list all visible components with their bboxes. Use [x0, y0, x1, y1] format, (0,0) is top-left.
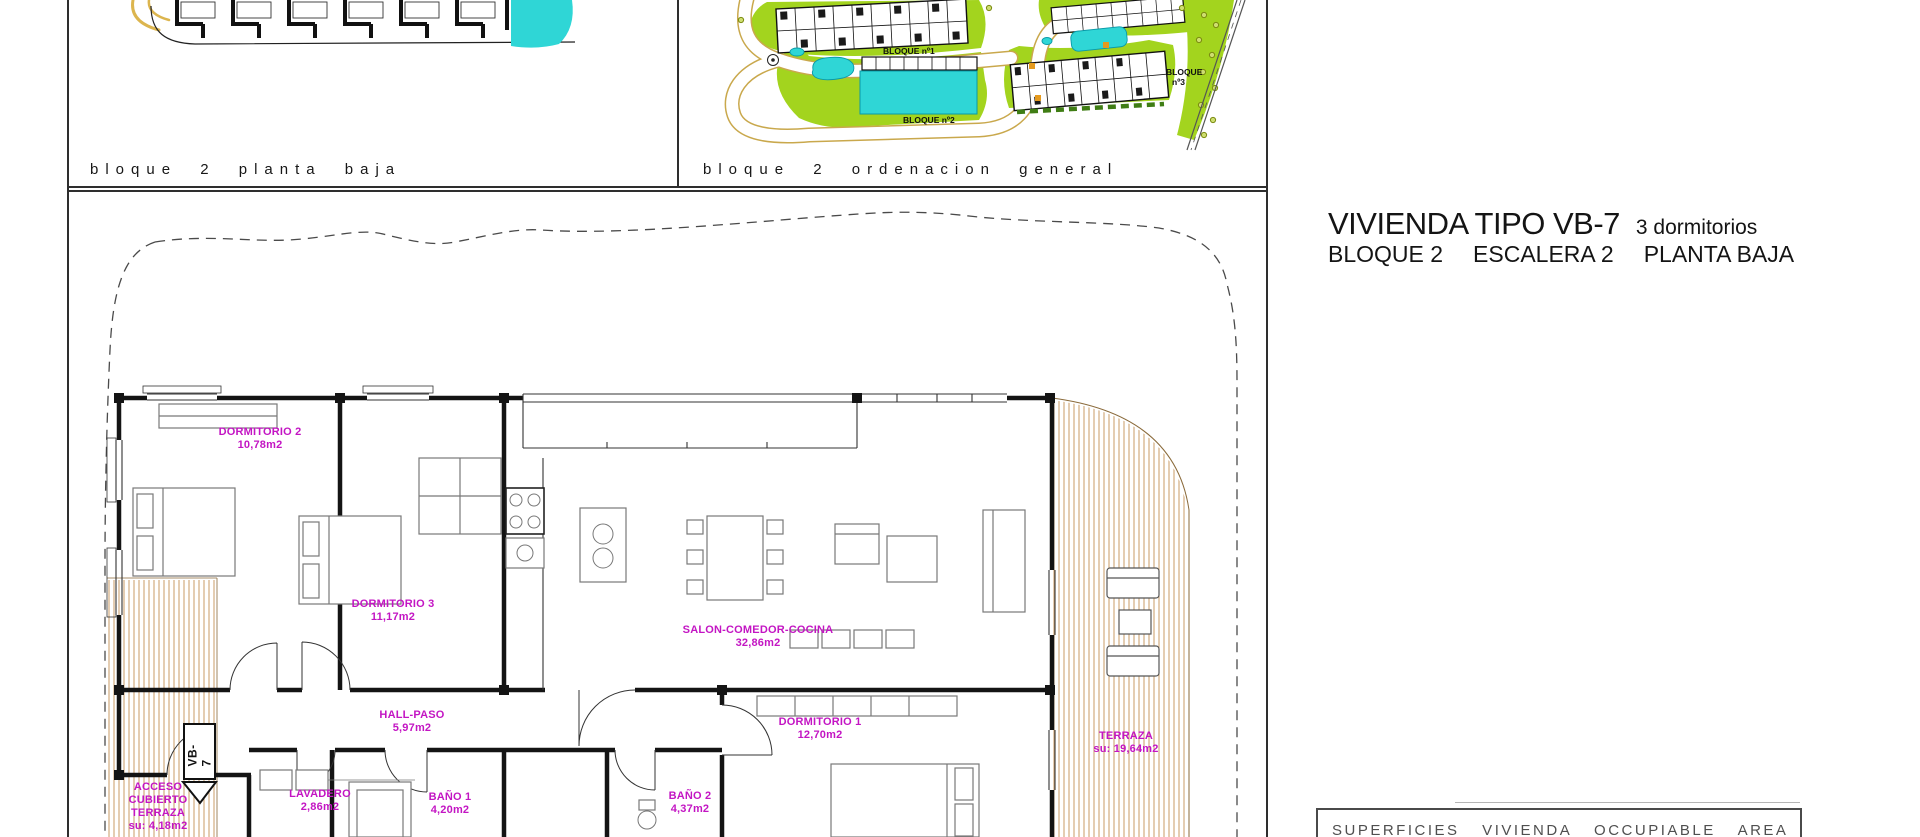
subtitle-planta: PLANTA BAJA: [1644, 241, 1794, 268]
title-vivienda-tipo: VIVIENDA TIPO VB-7: [1328, 206, 1620, 242]
label-dormitorio2: DORMITORIO 210,78m2: [185, 426, 335, 452]
label-dormitorio3: DORMITORIO 311,17m2: [318, 598, 468, 624]
superficies-table-header: SUPERFICIES VIVIENDA OCCUPIABLE AREA: [1316, 808, 1802, 837]
bloque-2-highlight: [860, 71, 977, 114]
label-terraza: TERRAZAsu: 19,64m2: [1076, 730, 1176, 756]
caption-ordenacion-general: bloque 2 ordenacion general: [703, 161, 1118, 178]
sheet-title: VIVIENDA TIPO VB-7 3 dormitorios: [1328, 206, 1757, 242]
label-lavadero: LAVADERO2,86m2: [270, 788, 370, 814]
subtitle-bloque: BLOQUE 2: [1328, 241, 1443, 268]
sheet-subtitle: BLOQUE 2 ESCALERA 2 PLANTA BAJA: [1328, 241, 1794, 268]
bloque-2-building: [860, 57, 977, 114]
unit-strip: [151, 0, 575, 48]
bloque-2-label: BLOQUE nº2: [903, 115, 955, 125]
label-salon: SALON-COMEDOR-COCINA32,86m2: [668, 624, 848, 650]
highlighted-unit: [511, 0, 573, 48]
bloque-1-building: [776, 0, 968, 53]
label-dormitorio1: DORMITORIO 112,70m2: [760, 716, 880, 742]
bloque-1-label: BLOQUE nº1: [883, 46, 935, 56]
furniture: [133, 404, 1159, 837]
superficies-label: SUPERFICIES VIVIENDA OCCUPIABLE AREA: [1318, 822, 1788, 837]
bloque-3-label-line1: BLOQUE: [1166, 67, 1203, 77]
label-bano2: BAÑO 24,37m2: [645, 790, 735, 816]
label-bano1: BAÑO 14,20m2: [405, 791, 495, 817]
drawing-sheet: bloque 2 planta baja: [0, 0, 1920, 837]
label-acceso: ACCESOCUBIERTO TERRAZAsu: 4,18m2: [103, 781, 213, 833]
frame-top-panels-bottom: [67, 186, 1268, 188]
planta-baja-strip-drawing: [67, 0, 677, 186]
unit-tag-plaque: VB-7: [183, 723, 216, 780]
subtitle-escalera: ESCALERA 2: [1473, 241, 1614, 268]
site-plan-drawing: BLOQUE nº1 BLOQUE nº2 BLOQUE nº3: [679, 0, 1267, 186]
caption-planta-baja: bloque 2 planta baja: [90, 161, 401, 178]
table-top-line: [1455, 802, 1800, 803]
unit-tag-text: VB-7: [186, 737, 214, 766]
label-hall: HALL-PASO5,97m2: [352, 709, 472, 735]
bloque-3-label-line2: nº3: [1172, 77, 1185, 87]
title-dormitorios: 3 dormitorios: [1636, 216, 1757, 240]
yellow-path: [133, 0, 169, 30]
